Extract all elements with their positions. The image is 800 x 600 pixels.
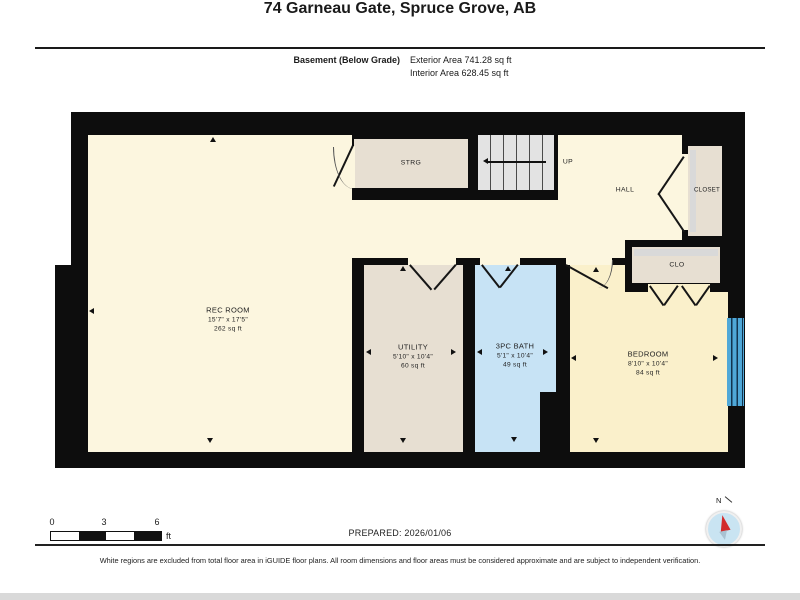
bath-label: 3PC BATH 5'1" x 10'4" 49 sq ft <box>496 341 535 369</box>
bedroom-arrow-right-icon <box>713 355 718 361</box>
compass-dial <box>706 511 742 547</box>
floor-plan: REC ROOM 15'7" x 17'5" 262 sq ft UTILITY… <box>0 0 800 600</box>
bath-arrow-down-icon <box>511 437 517 442</box>
bath-name: 3PC BATH <box>496 341 535 351</box>
closet-door-opening <box>682 154 688 230</box>
closet-label: CLOSET <box>694 187 720 194</box>
rec-room-name: REC ROOM <box>206 305 250 315</box>
utility-area: 60 sq ft <box>393 361 433 370</box>
prepared-date: PREPARED: 2026/01/06 <box>0 528 800 538</box>
bedroom-window <box>727 318 744 406</box>
compass-needle-north-icon <box>717 514 730 532</box>
rec-room-dims: 15'7" x 17'5" <box>206 315 250 324</box>
bath-area: 49 sq ft <box>496 360 535 369</box>
clo-label: CLO <box>669 262 684 269</box>
bedroom-dims: 8'10" x 10'4" <box>628 359 669 368</box>
compass-north-arrow-icon <box>725 496 733 503</box>
bath-door-opening <box>480 258 520 265</box>
rec-room-area: 262 sq ft <box>206 324 250 333</box>
rec-room-arrow-down-icon <box>207 438 213 443</box>
utility-name: UTILITY <box>393 342 433 352</box>
rec-room-floor <box>88 135 352 452</box>
compass-north-label: N <box>716 496 721 505</box>
utility-arrow-up-icon <box>400 266 406 271</box>
utility-arrow-left-icon <box>366 349 371 355</box>
hall-label: HALL <box>616 187 635 194</box>
rec-room-label: REC ROOM 15'7" x 17'5" 262 sq ft <box>206 305 250 333</box>
scale-tick-3: 3 <box>99 517 109 527</box>
bath-arrow-left-icon <box>477 349 482 355</box>
bath-corner-wall <box>540 392 556 452</box>
scale-tick-0: 0 <box>47 517 57 527</box>
utility-door-opening <box>408 258 456 265</box>
stairs-arrow-head-icon <box>483 158 488 164</box>
clo-door-track <box>634 249 718 256</box>
rec-room-arrow-up-icon <box>210 137 216 142</box>
storage-label: STRG <box>401 160 421 167</box>
bedroom-label: BEDROOM 8'10" x 10'4" 84 sq ft <box>628 349 669 377</box>
bedroom-arrow-down-icon <box>593 438 599 443</box>
utility-label: UTILITY 5'10" x 10'4" 60 sq ft <box>393 342 433 370</box>
compass-needle-south-icon <box>719 530 729 540</box>
bedroom-arrow-left-icon <box>571 355 576 361</box>
utility-arrow-down-icon <box>400 438 406 443</box>
bottom-border <box>0 593 800 600</box>
bedroom-arrow-up-icon <box>593 267 599 272</box>
utility-arrow-right-icon <box>451 349 456 355</box>
bath-arrow-up-icon <box>505 266 511 271</box>
footer-rule <box>35 544 765 546</box>
bedroom-area: 84 sq ft <box>628 368 669 377</box>
disclaimer: White regions are excluded from total fl… <box>0 556 800 565</box>
clo-door-opening <box>648 284 710 292</box>
corridor-floor <box>352 200 558 258</box>
bath-arrow-right-icon <box>543 349 548 355</box>
utility-dims: 5'10" x 10'4" <box>393 352 433 361</box>
rec-room-arrow-left-icon <box>89 308 94 314</box>
bath-dims: 5'1" x 10'4" <box>496 351 535 360</box>
staircase <box>478 135 554 190</box>
scale-tick-6: 6 <box>152 517 162 527</box>
left-wall-jog <box>55 112 71 265</box>
bedroom-name: BEDROOM <box>628 349 669 359</box>
compass: N <box>700 496 746 550</box>
stairs-arrow-line <box>488 161 546 163</box>
stairs-up-label: UP <box>563 159 573 166</box>
